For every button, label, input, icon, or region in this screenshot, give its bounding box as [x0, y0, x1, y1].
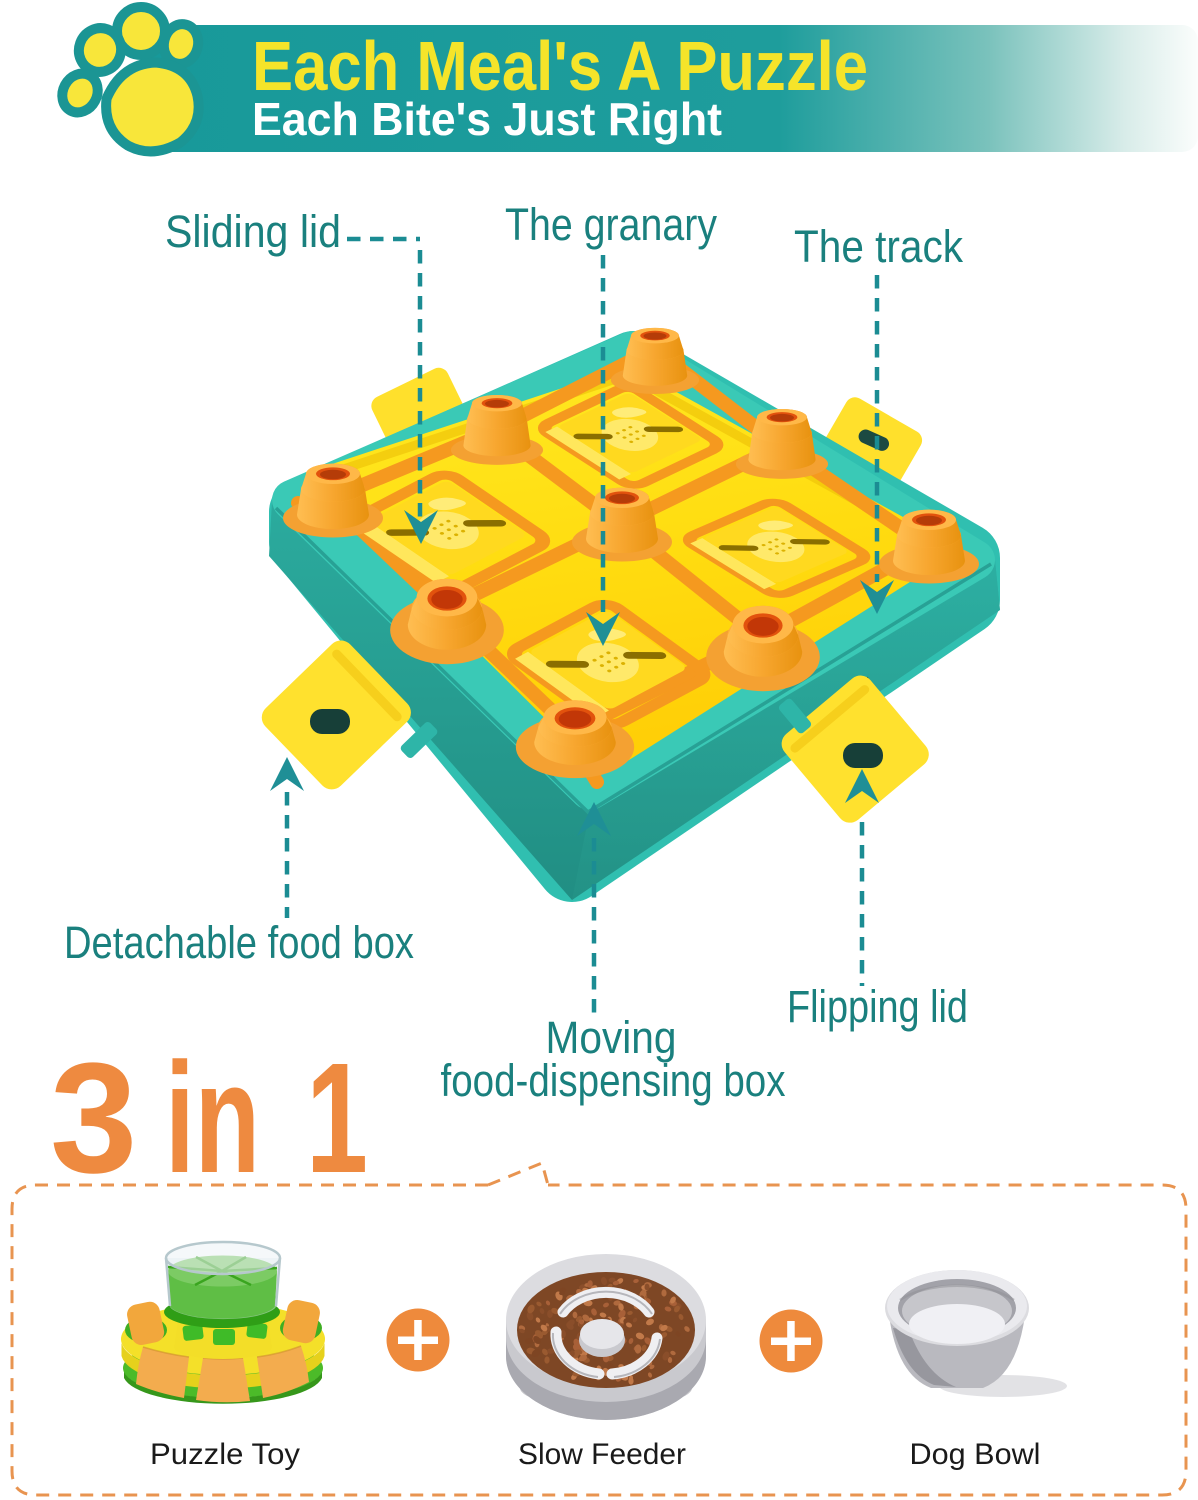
svg-text:Dog Bowl: Dog Bowl: [910, 1438, 1041, 1471]
svg-text:Slow Feeder: Slow Feeder: [518, 1438, 686, 1471]
svg-text:Puzzle Toy: Puzzle Toy: [150, 1438, 300, 1471]
svg-text:food-dispensing box: food-dispensing box: [441, 1055, 786, 1106]
svg-text:3: 3: [50, 1031, 137, 1206]
svg-text:Detachable food box: Detachable food box: [64, 917, 414, 968]
svg-text:in: in: [165, 1031, 260, 1206]
svg-text:The granary: The granary: [505, 199, 717, 250]
svg-text:Each Bite's Just Right: Each Bite's Just Right: [252, 93, 722, 145]
svg-text:1: 1: [306, 1031, 368, 1206]
svg-text:The track: The track: [794, 221, 963, 272]
svg-text:Flipping lid: Flipping lid: [787, 981, 968, 1032]
svg-text:Sliding lid: Sliding lid: [165, 206, 341, 257]
